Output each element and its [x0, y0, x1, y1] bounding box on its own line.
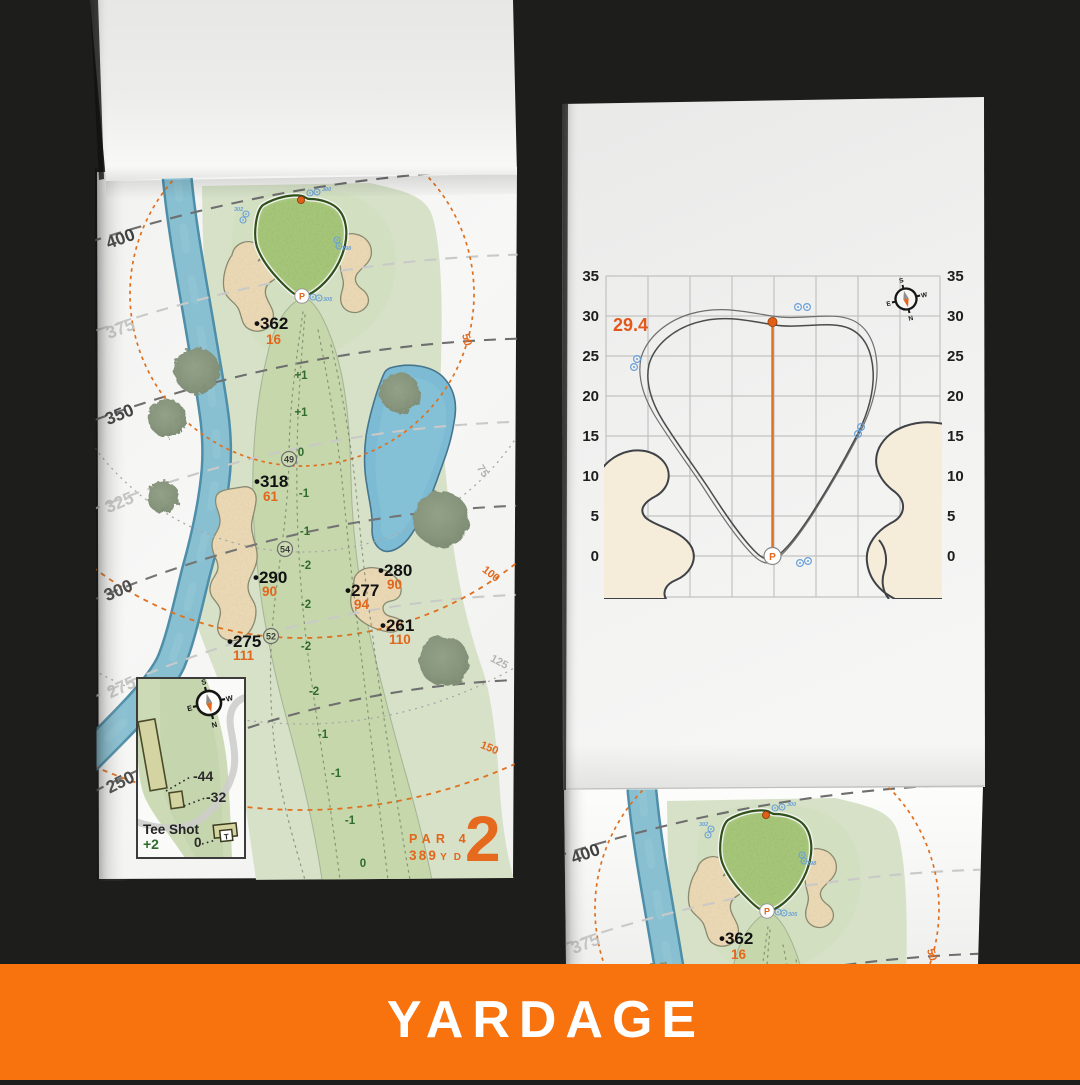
svg-text:35: 35 — [947, 268, 964, 285]
svg-text:0: 0 — [591, 548, 599, 565]
svg-text:35: 35 — [582, 268, 599, 285]
svg-text:25: 25 — [582, 348, 599, 365]
svg-text:5: 5 — [947, 508, 955, 525]
svg-text:25: 25 — [947, 348, 964, 365]
svg-text:15: 15 — [582, 428, 599, 445]
svg-text:29.4: 29.4 — [613, 315, 648, 335]
svg-text:15: 15 — [947, 428, 964, 445]
svg-text:0: 0 — [947, 548, 955, 565]
svg-text:5: 5 — [591, 508, 599, 525]
svg-text:30: 30 — [947, 308, 964, 325]
svg-text:20: 20 — [947, 388, 964, 405]
svg-text:P: P — [769, 552, 776, 563]
svg-text:10: 10 — [582, 468, 599, 485]
svg-text:10: 10 — [947, 468, 964, 485]
svg-text:YARDAGE: YARDAGE — [387, 991, 705, 1049]
svg-text:30: 30 — [582, 308, 599, 325]
svg-text:20: 20 — [582, 388, 599, 405]
